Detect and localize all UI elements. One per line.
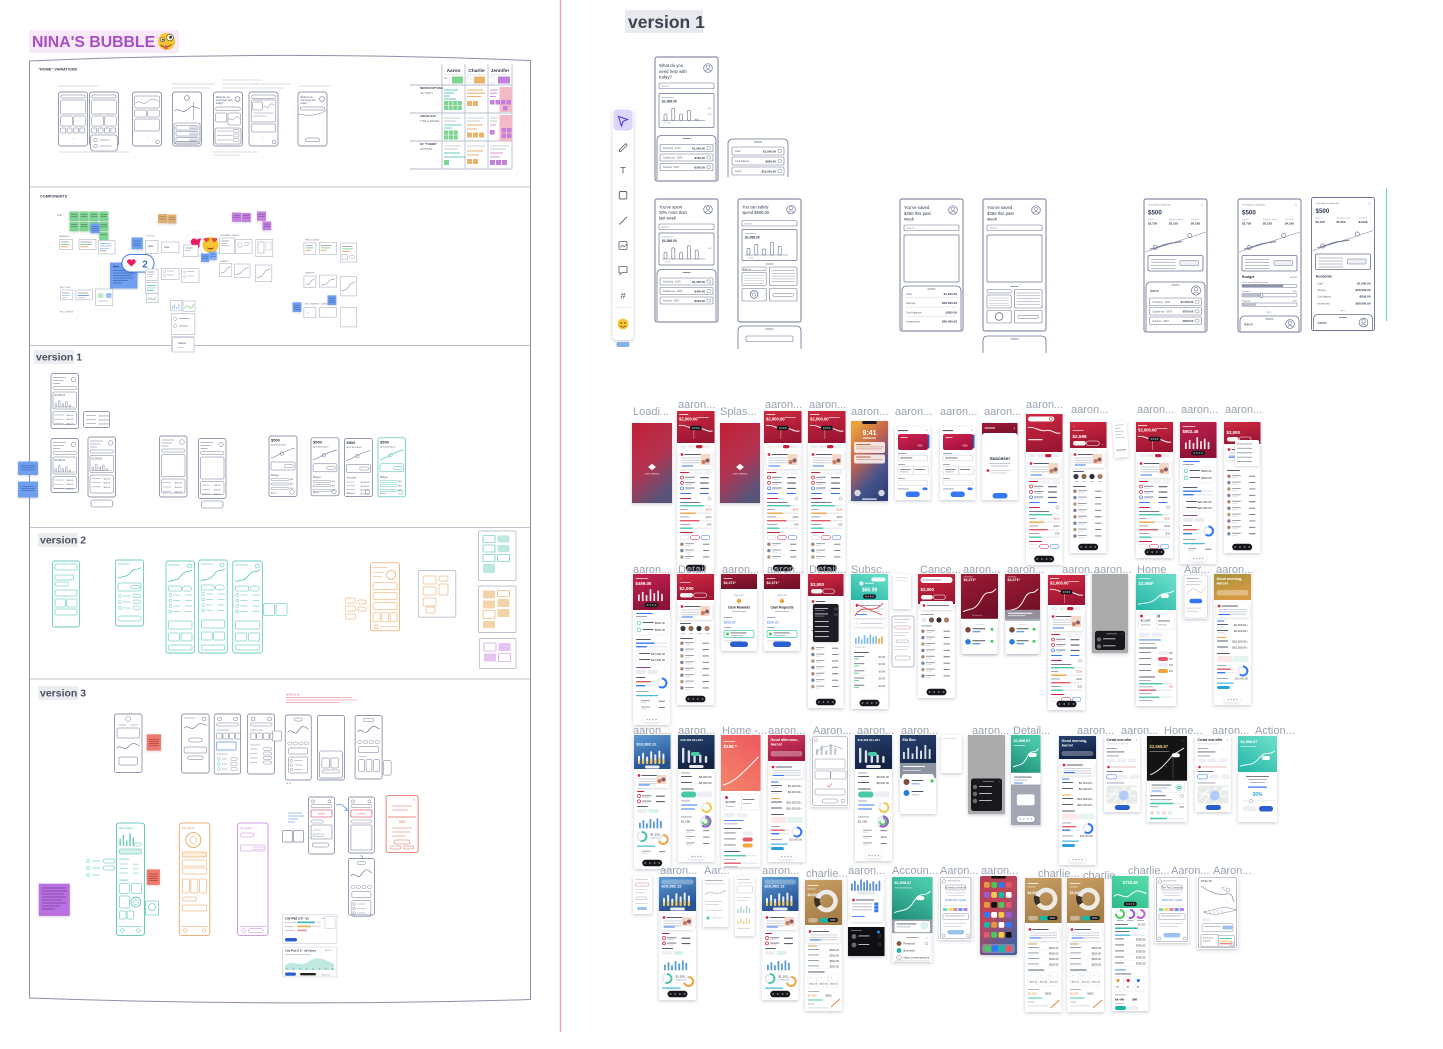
- svg-text:Search: Search: [744, 222, 753, 226]
- svg-text:. . .: . . .: [258, 278, 262, 281]
- svg-text:charlie...: charlie...: [806, 868, 848, 880]
- svg-text:BUTTONS: BUTTONS: [60, 287, 71, 289]
- svg-text:$00: $00: [399, 485, 402, 487]
- svg-text:Cash: Cash: [1318, 284, 1324, 286]
- svg-text:$00.00: $00.00: [175, 492, 182, 494]
- svg-text:$400: $400: [837, 515, 843, 519]
- svg-text:What do you: What do you: [659, 63, 684, 68]
- svg-text:version 2: version 2: [40, 535, 86, 547]
- svg-text:$500: $500: [347, 440, 357, 445]
- svg-text:$00.00: $00.00: [67, 415, 74, 417]
- svg-text:Budget: Budget: [1242, 275, 1255, 279]
- svg-text:Capital one - 5678: Capital one - 5678: [1153, 310, 1173, 313]
- svg-text:$80,000.00: $80,000.00: [1355, 301, 1370, 305]
- svg-text:$150: $150: [837, 508, 843, 512]
- svg-text:$4,292: $4,292: [1358, 220, 1368, 224]
- svg-text:aaron...: aaron...: [1071, 404, 1108, 416]
- svg-text:-$400.00: -$400.00: [694, 289, 706, 293]
- svg-text:You can safely: You can safely: [742, 205, 769, 210]
- svg-text:$50: $50: [1169, 670, 1174, 673]
- svg-text:MICROCOPY/ING: MICROCOPY/ING: [420, 86, 443, 90]
- svg-text:VISA: VISA: [917, 445, 923, 448]
- svg-text:Home...: Home...: [1164, 725, 1203, 737]
- svg-text:+: +: [923, 618, 925, 622]
- svg-text:+: +: [898, 956, 900, 960]
- svg-text:Ella Blue: Ella Blue: [903, 738, 917, 742]
- svg-text:Aaron: Aaron: [271, 492, 278, 495]
- svg-text:...: ...: [324, 310, 327, 314]
- svg-text:$5,253: $5,253: [1263, 222, 1273, 226]
- svg-text:Cash Rewards: Cash Rewards: [728, 606, 750, 610]
- svg-text:Success!: Success!: [990, 456, 1011, 461]
- svg-text:$1,200: $1,200: [676, 975, 686, 979]
- svg-text:$1,200: $1,200: [778, 975, 788, 979]
- svg-text:$00.00: $00.00: [104, 483, 111, 485]
- svg-text:$2,000.00: $2,000.00: [1050, 581, 1069, 586]
- svg-text:$2,000.00 ›: $2,000.00 ›: [1234, 629, 1248, 633]
- svg-text:$500: $500: [1148, 210, 1162, 217]
- svg-text:Search: Search: [661, 225, 670, 229]
- svg-text:$00.00: $00.00: [67, 419, 74, 421]
- svg-text:⋯: ⋯: [1102, 442, 1105, 446]
- svg-text:50%: 50%: [399, 820, 406, 824]
- svg-text:$400: $400: [1054, 524, 1060, 528]
- svg-text:Envision w/ future: Envision w/ future: [946, 886, 967, 890]
- svg-text:Savings: Savings: [1318, 290, 1327, 292]
- svg-text:$4,292: $4,292: [1191, 222, 1201, 226]
- svg-text:$2,000.00: $2,000.00: [810, 417, 829, 422]
- svg-text:aaron...: aaron...: [940, 406, 977, 418]
- svg-text:$10,000.00 ›: $10,000.00 ›: [1077, 803, 1093, 807]
- svg-text:Charlie: Charlie: [468, 68, 485, 74]
- svg-text:Aaron: Aaron: [313, 491, 320, 494]
- svg-text:week: week: [987, 217, 998, 222]
- svg-text:$00.00: $00.00: [67, 488, 74, 490]
- svg-text:aaron...: aaron...: [895, 406, 932, 418]
- svg-text:Savings: Savings: [906, 301, 916, 305]
- svg-text:Accoun...: Accoun...: [892, 865, 938, 877]
- svg-text:Splas...: Splas...: [720, 406, 757, 418]
- svg-text:Accounts: Accounts: [1316, 275, 1332, 279]
- svg-text:GRAPHS: GRAPHS: [305, 272, 315, 275]
- svg-text:$198 *: $198 *: [724, 744, 737, 749]
- svg-text:Big picture: Big picture: [119, 826, 133, 830]
- svg-text:9:41: 9:41: [862, 430, 876, 437]
- svg-text:$00: $00: [290, 484, 293, 486]
- svg-text:$150: $150: [1076, 670, 1082, 674]
- svg-text:$5,253: $5,253: [1169, 222, 1179, 226]
- svg-text:FY22: FY22: [1028, 1001, 1035, 1004]
- svg-text:NOTE: for p0: NOTE: for p0: [286, 694, 300, 697]
- svg-text:confirm: confirm: [358, 813, 366, 816]
- svg-text:Checking - 1234: Checking - 1234: [1153, 301, 1171, 304]
- svg-text:$500: $500: [1316, 208, 1330, 215]
- svg-text:Business: Business: [904, 949, 916, 953]
- svg-text:$80,000.00: $80,000.00: [942, 320, 957, 324]
- svg-text:$2,000.00 ›: $2,000.00 ›: [788, 784, 802, 788]
- svg-text:$1,200: $1,200: [650, 833, 660, 837]
- svg-text:...: ...: [345, 314, 348, 318]
- svg-text:Aaron!: Aaron!: [771, 743, 783, 747]
- svg-text:$1,200: $1,200: [858, 820, 868, 824]
- svg-text:aaron...: aaron...: [1225, 404, 1262, 416]
- svg-text:$10,000.00: $10,000.00: [762, 169, 777, 173]
- svg-text:$150: $150: [706, 508, 712, 512]
- svg-text:$500.00: $500.00: [1049, 946, 1059, 950]
- svg-text:$2,000: $2,000: [1227, 430, 1241, 435]
- svg-text:$46,492 $11,201: $46,492 $11,201: [681, 738, 704, 742]
- svg-text:$00.00: $00.00: [214, 485, 221, 487]
- svg-text:-$200.00: -$200.00: [694, 299, 706, 303]
- svg-text:$2,000.00 ›: $2,000.00 ›: [1079, 787, 1093, 791]
- svg-text:Capital one - 5678: Capital one - 5678: [663, 290, 683, 293]
- svg-text:last week: last week: [659, 216, 677, 221]
- svg-text:~~: ~~: [307, 310, 311, 314]
- svg-text:$4,371*: $4,371*: [964, 578, 977, 582]
- svg-text:$400: $400: [793, 515, 799, 519]
- svg-text:$66.99: $66.99: [862, 588, 878, 594]
- svg-text:$600: $600: [1045, 992, 1052, 996]
- svg-text:$400: $400: [1076, 677, 1082, 681]
- svg-text:$2,000.00: $2,000.00: [679, 417, 698, 422]
- svg-text:×: ×: [1226, 738, 1228, 742]
- svg-text:$0,00 $0,00 $0,00: $0,00 $0,00 $0,00: [347, 447, 362, 449]
- svg-text:←: ←: [1150, 738, 1153, 742]
- svg-text:$9.99: $9.99: [879, 655, 886, 659]
- svg-text:×: ×: [998, 780, 1000, 784]
- svg-text:Aaron!: Aaron!: [1217, 582, 1229, 586]
- svg-text:RECOMMEND. CARDS: RECOMMEND. CARDS: [305, 302, 329, 305]
- svg-text:$9.99: $9.99: [879, 684, 886, 688]
- svg-text:$10,000.00 ›: $10,000.00 ›: [786, 801, 802, 805]
- svg-text:$2,000: $2,000: [921, 587, 935, 592]
- svg-text:$500: $500: [271, 438, 281, 443]
- svg-text:$4,292: $4,292: [1285, 222, 1295, 226]
- svg-text:$600: $600: [1087, 992, 1094, 996]
- svg-text:$2,598.87: $2,598.87: [895, 881, 912, 885]
- svg-text:Card balance: Card balance: [735, 160, 750, 163]
- svg-text:My picture: My picture: [182, 826, 195, 830]
- svg-text:$400: $400: [1293, 291, 1297, 293]
- svg-text:VISA: VISA: [962, 445, 968, 448]
- svg-text:aaron...: aaron...: [851, 406, 888, 418]
- svg-text:$50: $50: [1169, 652, 1174, 655]
- svg-text:$4,371*: $4,371*: [767, 581, 780, 585]
- svg-text:...: ...: [322, 754, 324, 757]
- svg-text:ANYTHING: ANYTHING: [420, 148, 432, 151]
- svg-text:$3,726: $3,726: [1148, 222, 1158, 226]
- svg-text:$00: $00: [332, 485, 335, 487]
- svg-text:$2,000: $2,000: [808, 994, 817, 998]
- svg-text:confirm: confirm: [318, 813, 326, 816]
- svg-text:F M M J J A S: F M M J J A S: [855, 646, 866, 649]
- svg-text:Aaron...: Aaron...: [940, 865, 979, 877]
- svg-text:$500.00: $500.00: [830, 959, 840, 963]
- svg-text:←: ←: [1227, 424, 1230, 428]
- svg-text:$20,000.00: $20,000.00: [1198, 506, 1212, 510]
- svg-text:$0,000.00: $0,000.00: [99, 420, 110, 422]
- svg-text:$4,371*: $4,371*: [1008, 578, 1021, 582]
- svg-text:Card balance: Card balance: [906, 310, 922, 314]
- svg-text:aaron...: aaron...: [809, 399, 846, 411]
- svg-text:aaron...: aaron...: [1137, 404, 1174, 416]
- svg-text:-$200.00: -$200.00: [694, 165, 706, 169]
- svg-text:$35: $35: [794, 523, 799, 527]
- svg-text:$500.00: $500.00: [830, 954, 840, 958]
- svg-text:Search: Search: [906, 226, 915, 230]
- svg-text:$700.00 / week: $700.00 / week: [946, 898, 967, 902]
- svg-text:$20,000.00: $20,000.00: [1198, 500, 1212, 504]
- svg-text:$500: $500: [380, 439, 390, 444]
- svg-text:...: ...: [391, 487, 393, 490]
- svg-text:$600: $600: [825, 994, 832, 998]
- svg-text:$400: $400: [1164, 524, 1170, 528]
- svg-text:$1,098.00: $1,098.00: [745, 236, 760, 240]
- svg-text:Aaron...: Aaron...: [1213, 865, 1252, 877]
- svg-text:SUMMARY CARDS: SUMMARY CARDS: [220, 234, 240, 237]
- svg-text:Jennifer: Jennifer: [491, 68, 510, 74]
- svg-text:version 1: version 1: [628, 12, 705, 32]
- svg-text:Groceries: Groceries: [1242, 290, 1250, 293]
- svg-text:Budget: Budget: [313, 476, 321, 479]
- svg-text:$1,098.00: $1,098.00: [662, 100, 677, 104]
- svg-text:$20,000.00: $20,000.00: [789, 838, 803, 842]
- svg-text:$10,000.00 ›: $10,000.00 ›: [1232, 646, 1248, 650]
- svg-text:$2,598.87: $2,598.87: [1150, 744, 1169, 749]
- svg-text:J F M A: J F M A: [664, 122, 671, 125]
- svg-text:$1,000.00: $1,000.00: [692, 280, 705, 284]
- svg-text:$792.45: $792.45: [1201, 879, 1212, 883]
- svg-text:$2,000.00: $2,000.00: [1138, 428, 1157, 433]
- svg-text:...: ...: [357, 487, 359, 490]
- svg-text:$50: $50: [1169, 664, 1174, 667]
- svg-text:You've saved: You've saved: [904, 205, 930, 210]
- svg-text:$500: $500: [313, 439, 323, 444]
- svg-text:←: ←: [1073, 424, 1076, 428]
- svg-text:$1,000.00: $1,000.00: [1181, 300, 1194, 304]
- svg-text:$2,598*: $2,598*: [726, 800, 737, 804]
- svg-text:FY22: FY22: [808, 1003, 815, 1006]
- svg-text:charlie...: charlie...: [1128, 865, 1170, 877]
- svg-text:Get it on: Get it on: [777, 594, 787, 597]
- svg-text:$2,598.87: $2,598.87: [1241, 740, 1258, 744]
- svg-text:$500.00: $500.00: [743, 269, 752, 271]
- svg-text:$1,000.00: $1,000.00: [1357, 282, 1371, 286]
- svg-text:$500.00: $500.00: [1092, 963, 1102, 967]
- svg-text:Cash: Cash: [906, 292, 913, 296]
- svg-text:$500.00: $500.00: [655, 628, 666, 632]
- svg-text:...: ...: [146, 135, 149, 139]
- svg-text:Investments: Investments: [906, 320, 921, 324]
- svg-text:$500.00: $500.00: [1049, 957, 1059, 961]
- svg-text:←: ←: [811, 576, 814, 580]
- svg-text:$10,000.00 ›: $10,000.00 ›: [1232, 640, 1248, 644]
- svg-text:$100.00: $100.00: [724, 621, 736, 625]
- svg-text:Aaron...: Aaron...: [1171, 865, 1210, 877]
- svg-text:$00.00: $00.00: [67, 484, 74, 486]
- svg-text:Capital one - 5678: Capital one - 5678: [663, 157, 683, 160]
- svg-text:$00.00: $00.00: [175, 483, 182, 485]
- svg-text:$20,000.00: $20,000.00: [651, 652, 665, 656]
- svg-text:$86: $86: [1132, 998, 1137, 1002]
- svg-text:Aaron: Aaron: [1244, 323, 1253, 327]
- svg-text:aaron...: aaron...: [1077, 725, 1114, 737]
- svg-text:...: ...: [282, 487, 284, 490]
- svg-text:T: T: [620, 166, 626, 177]
- svg-text:FULL PAGES: FULL PAGES: [60, 311, 74, 314]
- svg-text:$0,00 $0,00 $0,00: $0,00 $0,00 $0,00: [313, 446, 328, 448]
- svg-text:$2,000: $2,000: [811, 582, 825, 587]
- svg-text:$2,000.00: $2,000.00: [766, 417, 785, 422]
- svg-text:$1,098.00: $1,098.00: [92, 458, 103, 461]
- svg-text:MENU CARDS: MENU CARDS: [305, 239, 320, 242]
- svg-text:$100.00: $100.00: [767, 621, 779, 625]
- svg-text:$500.00: $500.00: [1049, 963, 1059, 967]
- svg-text:Card balance: Card balance: [1318, 296, 1332, 299]
- svg-text:Open a new account: Open a new account: [904, 956, 930, 960]
- svg-text:$500.00: $500.00: [1030, 982, 1038, 984]
- svg-text:$2,598*: $2,598*: [1141, 619, 1152, 623]
- svg-text:$1,200: $1,200: [681, 820, 691, 824]
- svg-text:$718.49: $718.49: [1123, 880, 1139, 885]
- svg-text:Suntrust - 4567: Suntrust - 4567: [663, 166, 680, 169]
- svg-text:Budget: Budget: [271, 474, 279, 477]
- svg-text:FY22: FY22: [1070, 1001, 1077, 1004]
- svg-text:Aaron: Aaron: [380, 492, 387, 495]
- svg-text:$499.00: $499.00: [636, 581, 652, 586]
- svg-text:⋯: ⋯: [1182, 738, 1185, 742]
- svg-text:AUG 4: AUG 4: [325, 949, 332, 952]
- svg-text:2500: 2500: [708, 114, 712, 116]
- svg-text:You've spent $21,750 this mont: You've spent $21,750 this month: [1242, 281, 1268, 284]
- svg-text:$2,598*: $2,598*: [1139, 581, 1154, 586]
- svg-text:Aaron: Aaron: [1318, 321, 1327, 325]
- svg-text:-$700.00: -$700.00: [694, 156, 706, 160]
- svg-text:$20,000.00: $20,000.00: [1235, 677, 1249, 681]
- svg-text:aaron...: aaron...: [984, 406, 1021, 418]
- svg-text:aaron...: aaron...: [678, 399, 715, 411]
- svg-text:$1,200: $1,200: [1290, 277, 1297, 279]
- svg-text:$2,598.87: $2,598.87: [1014, 739, 1031, 743]
- svg-text:stuff: stuff: [57, 214, 62, 217]
- svg-text:$1,098.00: $1,098.00: [55, 394, 66, 397]
- svg-text:$20,000.00: $20,000.00: [651, 658, 665, 662]
- svg-text:$150: $150: [1164, 517, 1170, 521]
- svg-text:Accounts: Accounts: [119, 858, 130, 861]
- svg-text:Checking - 1234: Checking - 1234: [663, 281, 681, 284]
- svg-text:$20,000.00: $20,000.00: [942, 301, 957, 305]
- svg-text:Cash: Cash: [735, 150, 741, 153]
- svg-text:$1,098.00: $1,098.00: [55, 459, 66, 462]
- svg-text:Checking - 1234: Checking - 1234: [663, 147, 681, 150]
- svg-text:←: ←: [680, 576, 683, 580]
- svg-text:$1,000.00: $1,000.00: [944, 292, 958, 296]
- svg-text:$360 this past: $360 this past: [987, 211, 1015, 216]
- svg-text:You've saved: You've saved: [987, 205, 1013, 210]
- svg-text:VISUALS/UI: VISUALS/UI: [420, 114, 436, 118]
- svg-text:$46,492 $11,201: $46,492 $11,201: [858, 738, 881, 742]
- svg-text:spend $500.00: spend $500.00: [742, 210, 770, 215]
- svg-text:$3,726: $3,726: [1316, 220, 1326, 224]
- svg-text:$750.00: $750.00: [1136, 962, 1146, 966]
- svg-text:today?: today?: [216, 101, 224, 105]
- svg-text:Good morning,: Good morning,: [1062, 739, 1088, 743]
- svg-text:$2,000.00 ›: $2,000.00 ›: [1079, 781, 1093, 785]
- svg-text:You've spent: You've spent: [659, 205, 683, 210]
- svg-text:aaron...: aaron...: [1181, 404, 1218, 416]
- svg-text:$00: $00: [399, 481, 402, 483]
- svg-text:Aaron: Aaron: [1150, 289, 1159, 293]
- svg-text:$0,00 $0,00 $0,00: $0,00 $0,00 $0,00: [271, 445, 286, 447]
- svg-text:$3,726: $3,726: [1242, 222, 1252, 226]
- svg-text:Accounts: Accounts: [347, 477, 358, 480]
- svg-text:5000: 5000: [708, 248, 712, 250]
- svg-text:...: ...: [86, 855, 88, 858]
- svg-text:$750.00: $750.00: [1136, 938, 1146, 942]
- svg-text:$20,000.00: $20,000.00: [1355, 288, 1370, 292]
- svg-text:$0,000.00: $0,000.00: [361, 482, 371, 484]
- svg-text:Loans: Loans: [735, 170, 742, 173]
- svg-text:$500.00: $500.00: [830, 965, 840, 969]
- svg-text:$9.99: $9.99: [879, 677, 886, 681]
- svg-text:$35: $35: [1055, 532, 1060, 536]
- svg-text:BANNERS: BANNERS: [59, 235, 70, 238]
- svg-text:version 1: version 1: [36, 352, 82, 364]
- svg-text:Personal: Personal: [904, 942, 915, 946]
- svg-text:Wait!: Wait!: [113, 265, 119, 269]
- svg-text:30%: 30%: [1252, 792, 1263, 798]
- svg-text:Good morning,: Good morning,: [1217, 577, 1243, 581]
- svg-text:7d to Spend in September: 7d to Spend in September: [1148, 204, 1172, 207]
- svg-text:$500.00: $500.00: [1072, 982, 1080, 984]
- svg-text:Cash Requests: Cash Requests: [770, 606, 793, 610]
- svg-text:$8,000.00: $8,000.00: [877, 775, 890, 779]
- svg-text:AUG 22: AUG 22: [322, 974, 331, 977]
- svg-text:STOCKS: STOCKS: [146, 236, 155, 238]
- svg-text:$800.00: $800.00: [766, 159, 777, 163]
- svg-text:Set it up &: Set it up &: [1203, 937, 1214, 940]
- svg-text:aaron...: aaron...: [981, 865, 1018, 877]
- svg-text:$00: $00: [332, 490, 335, 492]
- svg-text:-$200.00: -$200.00: [1359, 295, 1371, 299]
- svg-text:5000: 5000: [708, 108, 712, 110]
- svg-text:$00.00: $00.00: [104, 487, 111, 489]
- svg-text:Get it on: Get it on: [734, 594, 744, 597]
- svg-text:aaron...: aaron...: [765, 399, 802, 411]
- svg-text:Action...: Action...: [1255, 725, 1295, 737]
- svg-text:$802.45: $802.45: [1183, 429, 1199, 434]
- svg-text:$9.99: $9.99: [879, 669, 886, 673]
- svg-text:$700.00 / week: $700.00 / week: [1162, 898, 1183, 902]
- svg-text:Submit: Submit: [178, 341, 186, 345]
- svg-text:$500.00: $500.00: [1201, 476, 1212, 480]
- svg-text:$35: $35: [838, 523, 843, 527]
- svg-text:...: ...: [324, 486, 326, 489]
- svg-text:Loadi...: Loadi...: [633, 406, 669, 418]
- svg-text:Aaron: Aaron: [447, 68, 461, 74]
- svg-text:Aaron!: Aaron!: [1062, 744, 1074, 748]
- svg-text:● ●: ● ●: [286, 781, 291, 785]
- svg-text:$35: $35: [707, 523, 712, 527]
- svg-text:Create new offer: Create new offer: [1198, 738, 1224, 742]
- svg-text:$500.00: $500.00: [820, 984, 828, 986]
- svg-text:$500.00: $500.00: [1049, 952, 1059, 956]
- svg-text:$500.00: $500.00: [1050, 982, 1058, 984]
- svg-text:$2,000: $2,000: [1028, 992, 1037, 996]
- svg-text:×: ×: [413, 798, 415, 802]
- svg-text:J F M A: J F M A: [664, 261, 671, 264]
- svg-text:$00.00: $00.00: [214, 494, 221, 496]
